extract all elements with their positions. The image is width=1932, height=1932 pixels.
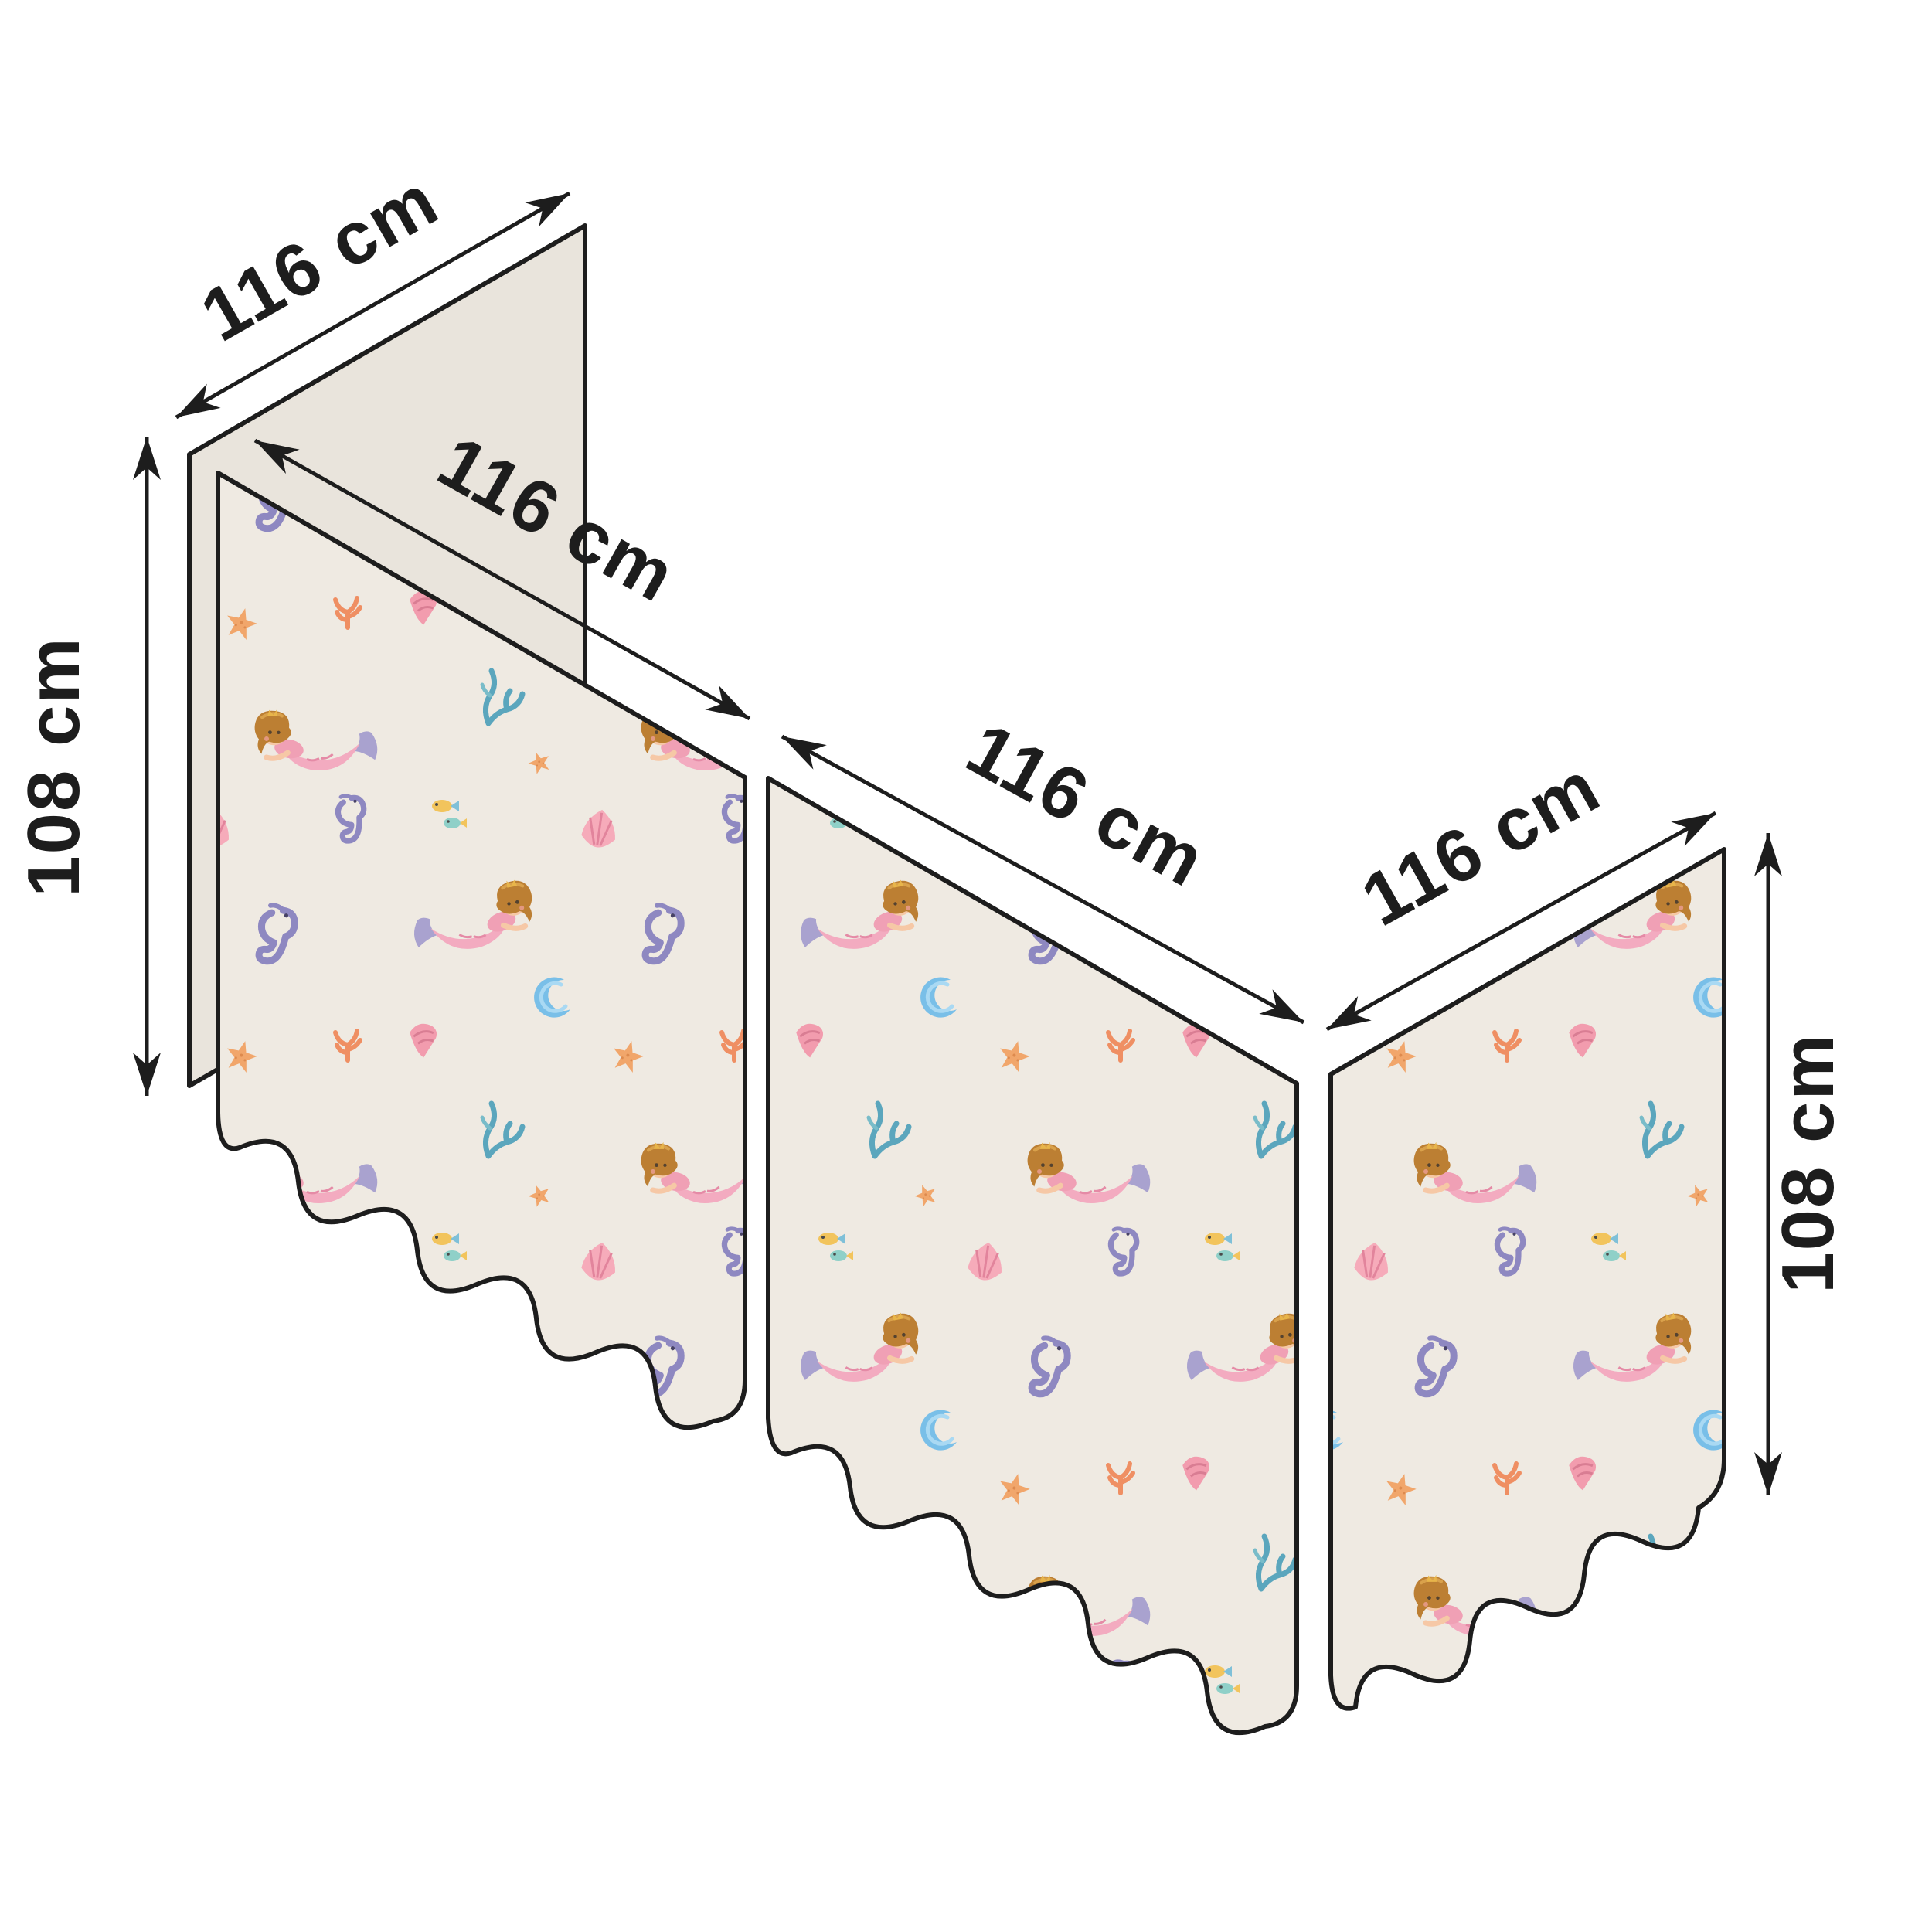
dim-label-right-panel-width: 116 cm	[1349, 745, 1613, 942]
front-curtain-panel	[768, 778, 1297, 1733]
dim-label-right-height: 108 cm	[1767, 1032, 1849, 1294]
curtain-dimension-diagram: 116 cm 108 cm 116 cm 116 cm 116 cm 108 c…	[0, 0, 1932, 1932]
dim-label-left-height: 108 cm	[12, 636, 95, 897]
dim-label-front-panel-width: 116 cm	[954, 707, 1219, 903]
right-curtain-panel	[1331, 849, 1724, 1709]
